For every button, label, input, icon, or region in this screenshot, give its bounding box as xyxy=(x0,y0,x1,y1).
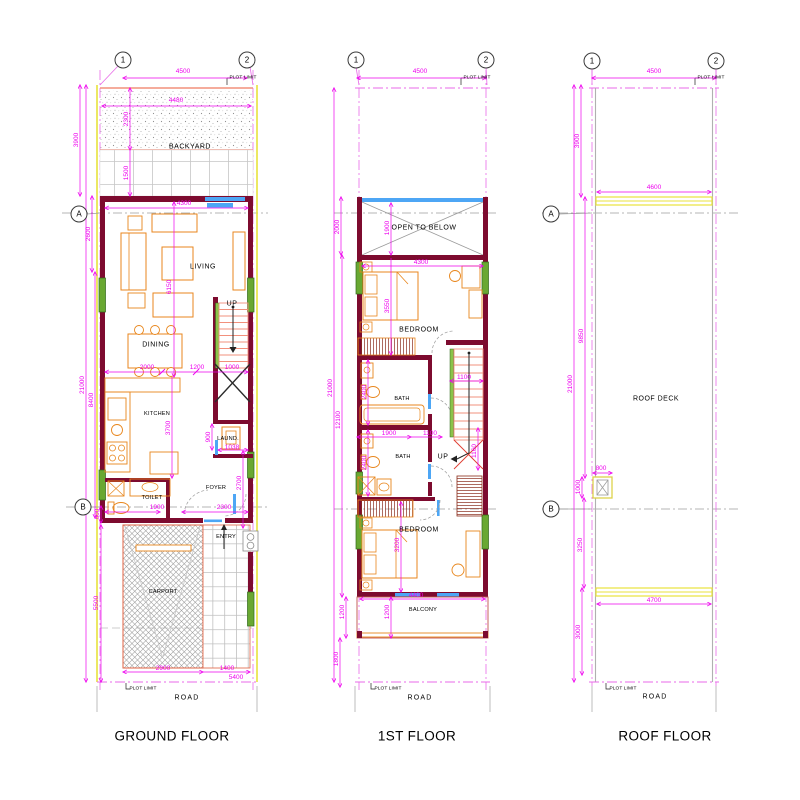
road-label: ROAD xyxy=(642,694,667,701)
door-leaf xyxy=(428,464,431,479)
road-label: ROAD xyxy=(407,695,432,702)
dim-label: 1038 xyxy=(225,445,239,452)
stair-rail xyxy=(216,303,220,368)
first-floor-plan xyxy=(334,67,498,712)
room-label-balcony: BALCONY xyxy=(409,608,437,614)
road-label: ROAD xyxy=(174,695,199,702)
chair-icon xyxy=(452,564,464,576)
dim-label: 1100 xyxy=(457,375,471,382)
dresser-icon xyxy=(469,290,482,318)
window-green xyxy=(482,262,489,294)
wall xyxy=(213,420,253,424)
dim-label: 4500 xyxy=(176,69,190,76)
wardrobe-icon xyxy=(358,338,415,355)
dim-label: 800 xyxy=(596,466,607,473)
railing xyxy=(362,198,483,202)
dim-label: 3900 xyxy=(74,133,81,147)
dim-label: 2300 xyxy=(124,112,131,126)
room-label-living: LIVING xyxy=(190,264,216,271)
dim-label: 2000 xyxy=(140,365,154,372)
desk-icon xyxy=(462,266,480,288)
dim-label: 1100 xyxy=(423,431,437,438)
door-swing xyxy=(431,398,452,419)
floor-plan-sheet: 1 2 A B 4500 PLOT LIMIT 4480 2300 3900 1… xyxy=(0,0,800,800)
stair-rail xyxy=(450,349,454,437)
dim-label: 4500 xyxy=(413,69,427,76)
dim-label: 4300 xyxy=(177,201,191,208)
room-label-carport: CARPORT xyxy=(149,590,178,596)
closet-icon xyxy=(457,476,482,516)
dim-label: 4500 xyxy=(647,69,661,76)
dim-label: 21000 xyxy=(568,375,575,393)
wall xyxy=(446,340,488,345)
desk-icon xyxy=(466,531,480,577)
door-swing xyxy=(431,466,452,487)
dim-label: 4300 xyxy=(414,260,428,267)
room-label-open-to-below: OPEN TO BELOW xyxy=(392,225,457,232)
up-label: UP xyxy=(227,301,238,308)
sheet-title-first: 1ST FLOOR xyxy=(378,729,456,743)
dim-label: 5500 xyxy=(94,596,101,610)
plot-limit-label: PLOT LIMIT xyxy=(374,688,401,693)
dim-label: 3200 xyxy=(395,538,402,552)
entry-door-sill xyxy=(204,520,222,523)
wall xyxy=(248,552,253,592)
dim-label: 4400 xyxy=(409,593,423,600)
dim-label: 1200 xyxy=(385,605,392,619)
window-green xyxy=(99,278,106,312)
dim-label: 1400 xyxy=(220,666,234,673)
fridge-icon xyxy=(150,452,178,474)
room-label-backyard: BACKYARD xyxy=(169,144,211,151)
dim-label: 1200 xyxy=(340,605,347,619)
sofa-icon xyxy=(152,214,197,232)
utility-unit xyxy=(243,531,258,551)
ground-floor-plan xyxy=(62,66,268,712)
window-green xyxy=(356,262,363,294)
sheet-title-roof: ROOF FLOOR xyxy=(618,729,711,743)
dim-label: 1800 xyxy=(334,652,341,666)
dim-label: 3250 xyxy=(578,538,585,552)
dim-label: 600 xyxy=(95,509,102,520)
room-label-bedroom1: BEDROOM xyxy=(399,327,439,334)
stair-arrow xyxy=(457,353,469,459)
grid-bubble-1: 1 xyxy=(115,52,132,69)
dim-label: 1900 xyxy=(150,505,164,512)
dim-label: 2400 xyxy=(362,385,369,399)
dim-label: 5400 xyxy=(229,675,243,682)
grid-bubble-b: B xyxy=(75,499,92,516)
wall xyxy=(213,454,253,458)
room-label-bath1: BATH xyxy=(394,397,409,403)
chair-icon xyxy=(135,326,144,335)
up-label: UP xyxy=(438,454,449,461)
plot-limit-label: PLOT LIMIT xyxy=(609,688,636,693)
dim-label: 2900 xyxy=(156,666,170,673)
dim-label: 3900 xyxy=(575,134,582,148)
door-leaf xyxy=(233,494,236,514)
dim-label: 12100 xyxy=(336,411,343,429)
door-leaf xyxy=(437,500,440,516)
wall xyxy=(100,518,253,523)
carport-beam xyxy=(136,545,191,551)
grid-bubble-1: 1 xyxy=(348,52,365,69)
grid-bubble-2: 2 xyxy=(478,52,495,69)
grid-bubble-b: B xyxy=(543,501,560,518)
dim-label: 900 xyxy=(206,432,213,443)
plot-limit-label: PLOT LIMIT xyxy=(129,688,156,693)
dim-label: 21000 xyxy=(80,376,87,394)
wall xyxy=(357,355,432,360)
grid-bubble-a: A xyxy=(543,206,560,223)
dim-label: 1200 xyxy=(190,365,204,372)
sofa-icon xyxy=(121,233,146,290)
dim-label: 3000 xyxy=(576,625,583,639)
dim-label: 1500 xyxy=(124,166,131,180)
plot-limit-label: PLOT LIMIT xyxy=(463,77,490,82)
door-swing xyxy=(184,490,208,514)
coffee-table xyxy=(162,247,193,280)
tv-console xyxy=(207,203,233,208)
grid-bubble-1: 1 xyxy=(584,53,601,70)
grid-bubble-2: 2 xyxy=(239,52,256,69)
dim-label: 2000 xyxy=(335,220,342,234)
window-green xyxy=(482,515,489,549)
wall xyxy=(166,482,170,518)
room-label-bedroom2: BEDROOM xyxy=(399,527,439,534)
dim-label: 1900 xyxy=(382,431,396,438)
room-label-dining: DINING xyxy=(142,342,170,349)
chair-icon xyxy=(151,326,160,335)
dim-label: 2400 xyxy=(362,456,369,470)
side-table xyxy=(128,216,142,230)
dim-label: 1000 xyxy=(225,365,239,372)
dim-label: 3700 xyxy=(166,421,173,435)
dim-label: 2600 xyxy=(86,227,93,241)
stove-icon xyxy=(107,442,127,464)
room-label-roof-deck: ROOF DECK xyxy=(633,396,679,403)
balcony-outline xyxy=(357,597,488,638)
window xyxy=(205,197,245,201)
room-label-foyer: FOYER xyxy=(206,486,226,492)
dim-label: 1160 xyxy=(472,444,479,458)
room-label-kitchen: KITCHEN xyxy=(144,412,170,418)
door-leaf xyxy=(428,394,431,409)
wardrobe-icon xyxy=(358,500,413,517)
dim-label: 9850 xyxy=(579,329,586,343)
window-green xyxy=(99,470,106,500)
room-label-entry: ENTRY xyxy=(216,535,236,541)
plot-limit-label: PLOT LIMIT xyxy=(697,77,724,82)
console-icon xyxy=(233,232,245,290)
room-label-bath2: BATH xyxy=(395,455,410,461)
balcony-edge xyxy=(357,633,488,637)
room-label-laundry: LAUND. xyxy=(217,437,239,443)
sliding-door xyxy=(437,593,459,596)
dim-label: 3550 xyxy=(385,299,392,313)
room-label-toilet: TOILET xyxy=(142,496,163,502)
dim-label: 4600 xyxy=(647,185,661,192)
dim-label: 2700 xyxy=(237,476,244,490)
sink-icon xyxy=(361,434,373,448)
kitchen-sink-icon xyxy=(108,398,126,420)
plot-limit-label: PLOT LIMIT xyxy=(229,77,256,82)
dim-label: 21000 xyxy=(328,379,335,397)
chair-icon xyxy=(450,271,461,282)
dim-label: 1900 xyxy=(385,221,392,235)
dim-label: 1000 xyxy=(576,480,583,494)
dim-label: 2300 xyxy=(217,505,231,512)
kitchen-counter xyxy=(105,378,180,392)
dim-label: 4700 xyxy=(647,598,661,605)
dim-label: 6150 xyxy=(167,280,174,294)
bed-icon xyxy=(362,530,417,578)
gate-green xyxy=(248,592,255,626)
wall xyxy=(213,372,218,420)
sofa-icon xyxy=(153,293,193,317)
window-green xyxy=(248,278,255,312)
window-green xyxy=(356,472,363,494)
side-table xyxy=(128,293,145,308)
grid-bubble-a: A xyxy=(71,206,88,223)
sheet-title-ground: GROUND FLOOR xyxy=(114,729,229,743)
sink-icon xyxy=(361,363,373,378)
dim-label: 4480 xyxy=(169,98,183,105)
grid-bubble-2: 2 xyxy=(708,53,725,70)
dim-label: 8400 xyxy=(89,393,96,407)
